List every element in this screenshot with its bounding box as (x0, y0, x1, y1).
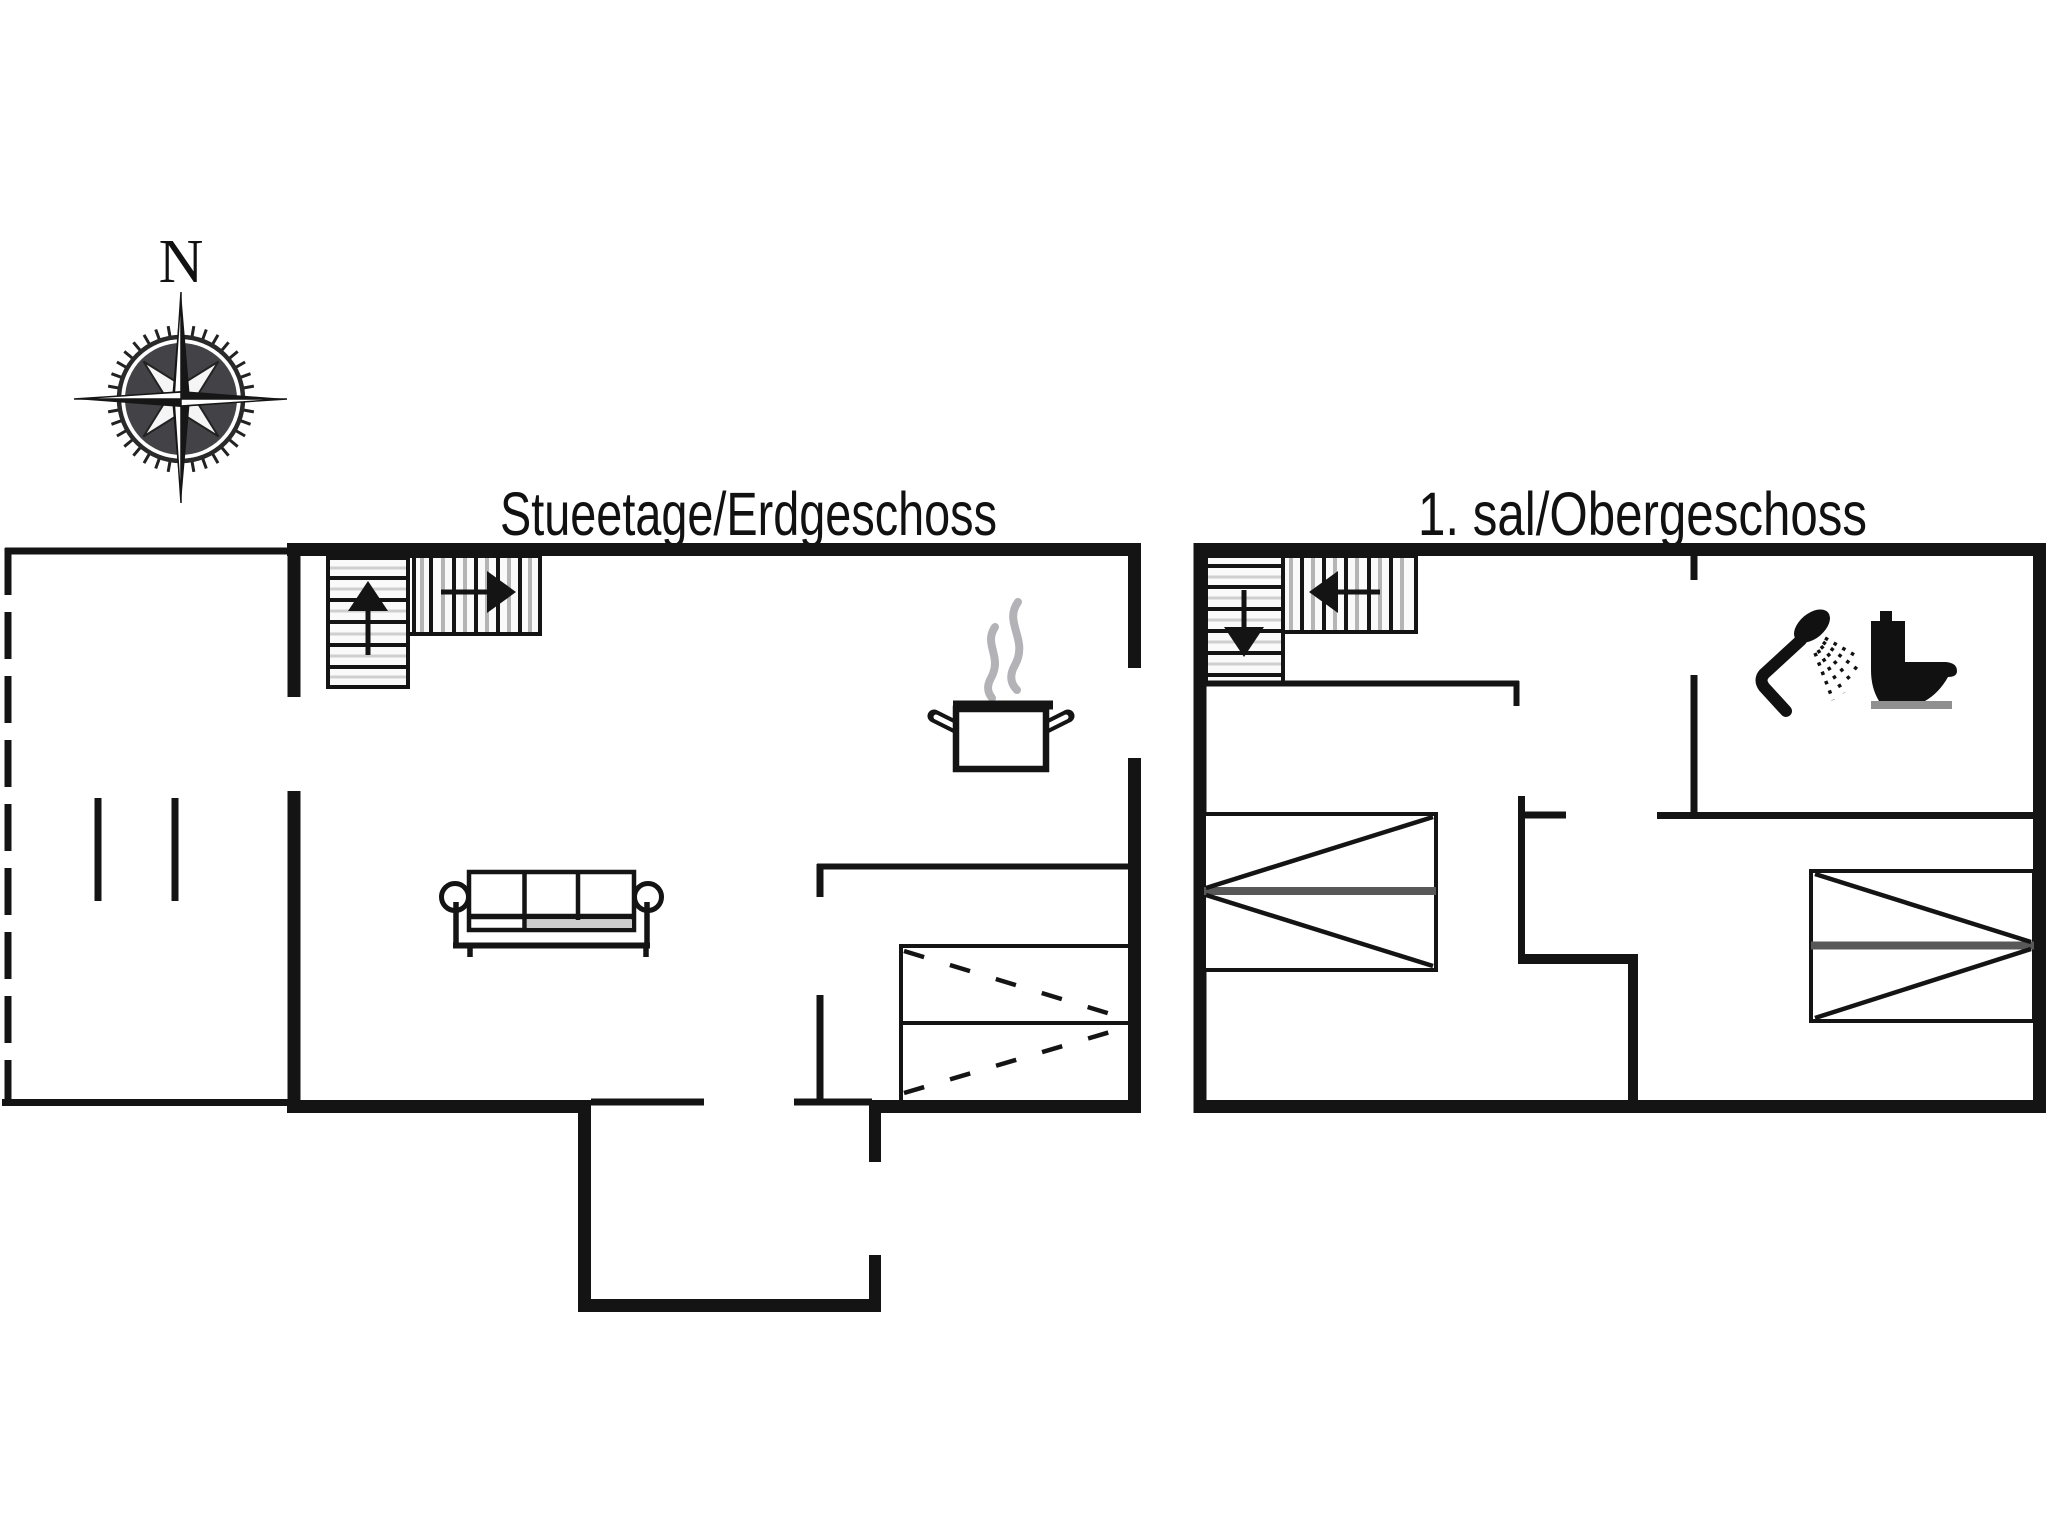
svg-text:1. sal/Obergeschoss: 1. sal/Obergeschoss (1418, 480, 1867, 548)
svg-text:N: N (159, 228, 204, 296)
svg-text:Stueetage/Erdgeschoss: Stueetage/Erdgeschoss (500, 480, 997, 548)
